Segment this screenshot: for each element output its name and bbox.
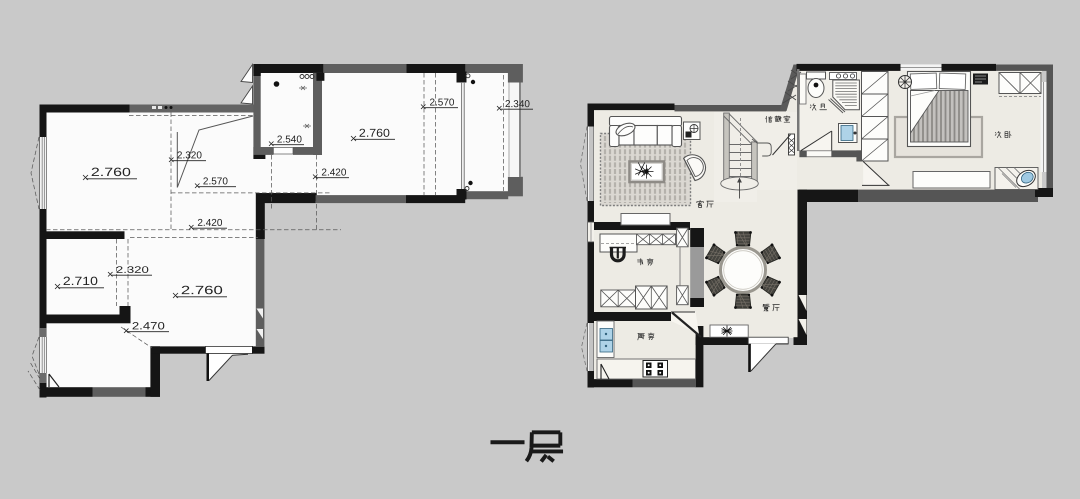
svg-text:2.320: 2.320 <box>116 265 149 276</box>
svg-text:2.540: 2.540 <box>277 134 302 145</box>
svg-text:2.320: 2.320 <box>177 150 202 161</box>
svg-text:2.760: 2.760 <box>181 283 223 297</box>
svg-text:2.760: 2.760 <box>359 128 390 140</box>
svg-text:2.760: 2.760 <box>91 165 131 179</box>
svg-text:2.420: 2.420 <box>321 167 346 178</box>
svg-text:2.570: 2.570 <box>429 98 454 109</box>
svg-text:2.470: 2.470 <box>132 320 165 332</box>
svg-text:2.710: 2.710 <box>63 274 98 288</box>
svg-text:2.420: 2.420 <box>197 218 222 229</box>
svg-text:2.570: 2.570 <box>203 176 228 187</box>
svg-text:2.340: 2.340 <box>505 99 530 110</box>
